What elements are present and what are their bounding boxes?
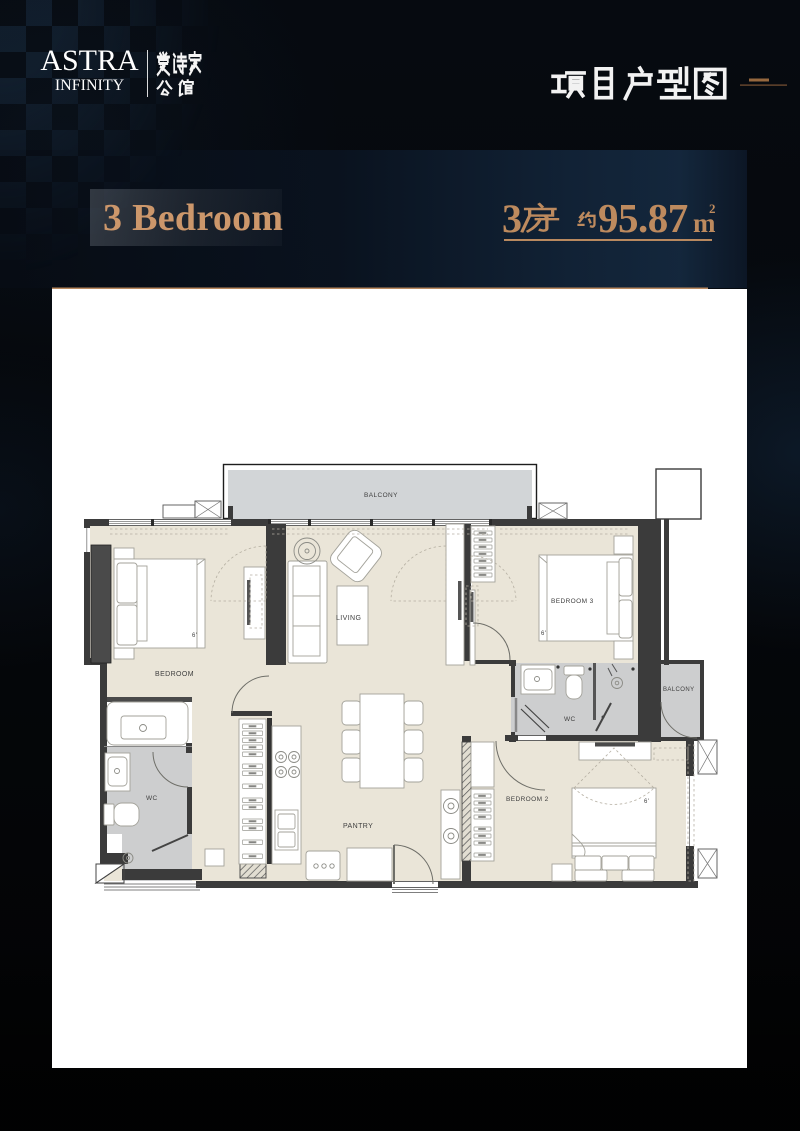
svg-text:95.87: 95.87 xyxy=(598,195,688,241)
svg-text:BALCONY: BALCONY xyxy=(663,687,694,693)
svg-text:WC: WC xyxy=(564,716,576,723)
svg-text:2: 2 xyxy=(709,201,716,216)
svg-text:PANTRY: PANTRY xyxy=(343,823,373,830)
svg-text:6': 6' xyxy=(192,633,197,639)
svg-text:BEDROOM 2: BEDROOM 2 xyxy=(506,796,549,803)
svg-text:6': 6' xyxy=(644,799,649,805)
svg-text:BEDROOM: BEDROOM xyxy=(155,671,194,678)
svg-text:3: 3 xyxy=(502,196,522,241)
svg-text:WC: WC xyxy=(146,795,158,802)
svg-text:LIVING: LIVING xyxy=(336,615,361,622)
svg-text:BEDROOM 3: BEDROOM 3 xyxy=(551,598,594,605)
svg-text:6': 6' xyxy=(541,631,546,637)
svg-text:BALCONY: BALCONY xyxy=(364,492,398,499)
